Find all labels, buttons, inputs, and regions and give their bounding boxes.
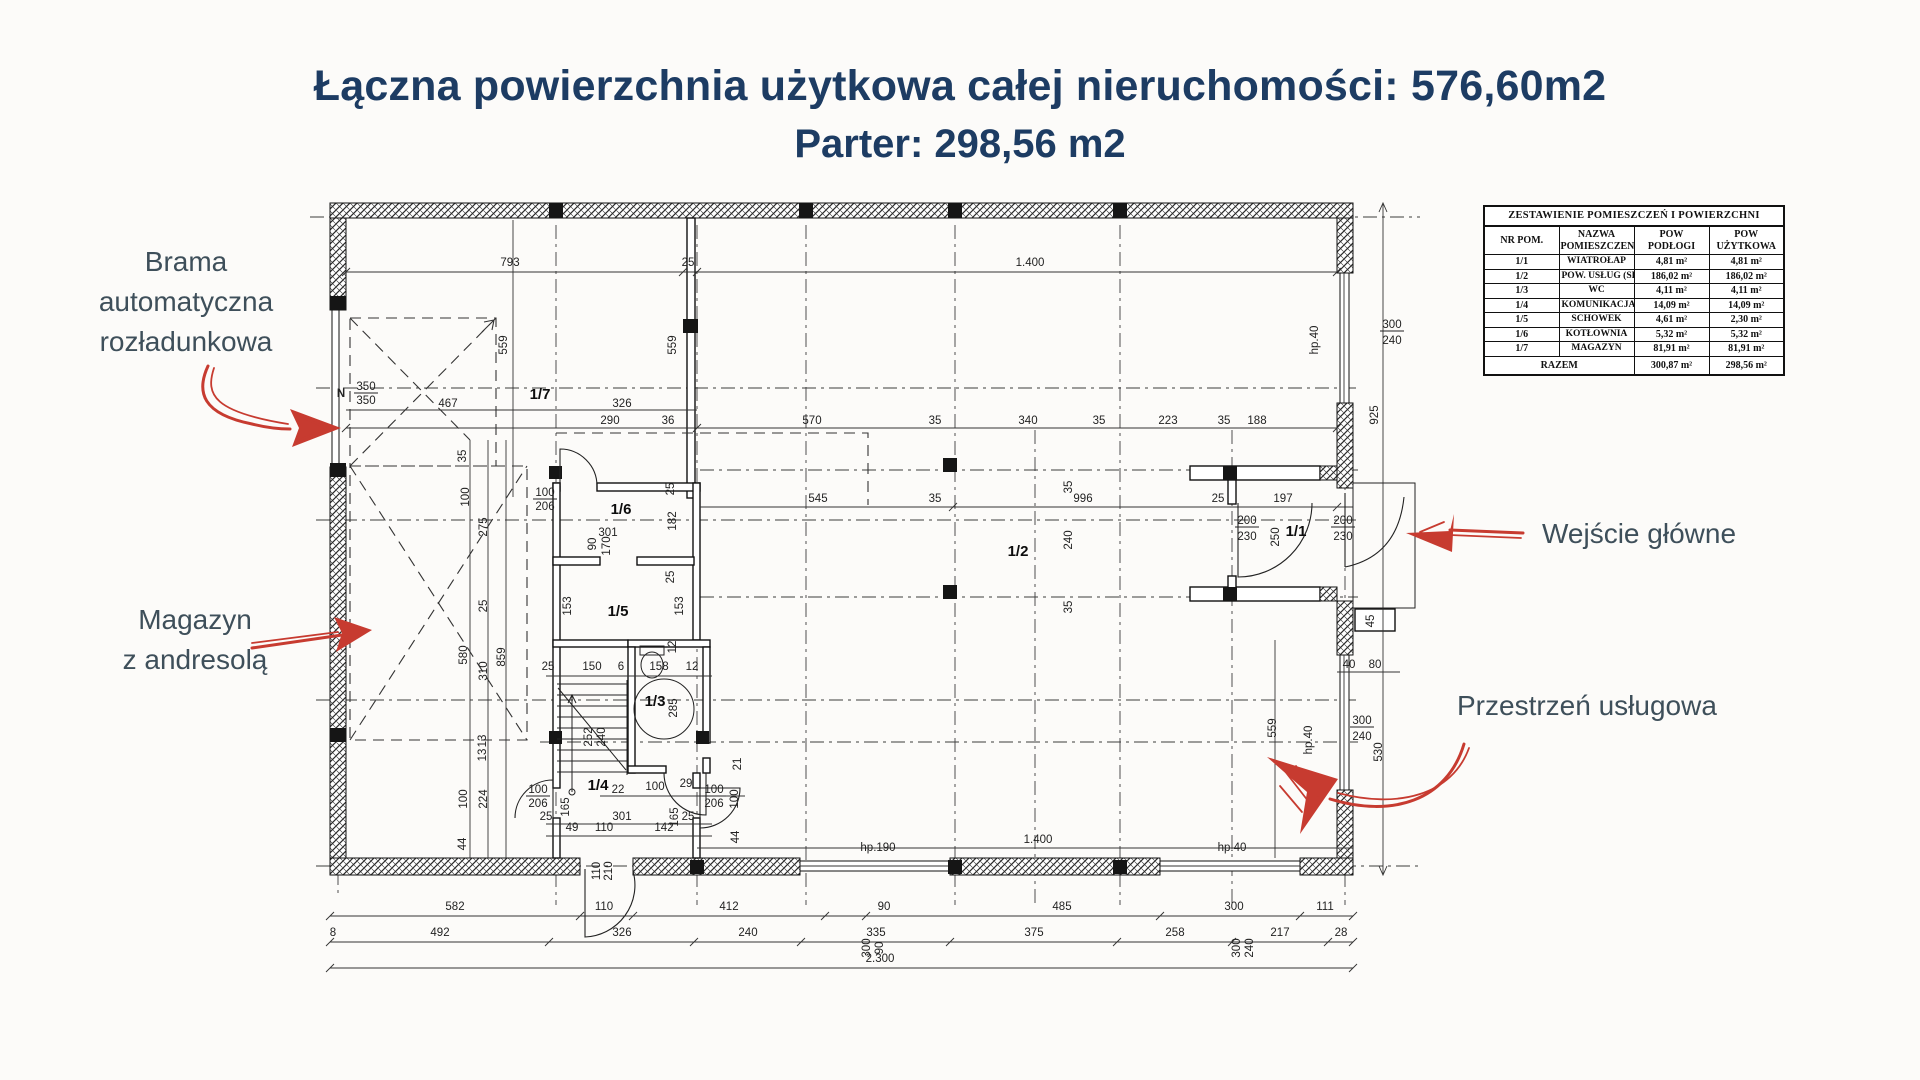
dim-label: 559 xyxy=(667,335,679,354)
dim-label: 350 xyxy=(356,395,375,407)
dim-label: hp.40 xyxy=(1303,726,1315,755)
dim-label: 310 xyxy=(478,661,490,680)
partition-walls xyxy=(553,218,1395,858)
arrow-brama xyxy=(203,366,341,447)
dim-label: 559 xyxy=(498,335,510,354)
dim-label: 22 xyxy=(612,784,625,796)
dim-label: 223 xyxy=(1158,415,1177,427)
dim-label: 49 xyxy=(566,822,579,834)
dim-label: 290 xyxy=(600,415,619,427)
dim-label: 36 xyxy=(662,415,675,427)
floor-plan-svg: 793251.400467326290365703534035223351883… xyxy=(0,0,1920,1080)
dim-label: 492 xyxy=(430,927,449,939)
dim-label: 1.400 xyxy=(1024,834,1053,846)
dim-label: 25 xyxy=(665,571,677,584)
dim-label: hp.190 xyxy=(860,842,895,854)
dim-label: 25 xyxy=(682,811,695,823)
dim-label: 25 xyxy=(682,257,695,269)
dim-label: 240 xyxy=(1382,335,1401,347)
dim-label: 8 xyxy=(330,927,336,939)
dim-label: 45 xyxy=(1365,615,1377,628)
dim-label: 340 xyxy=(1018,415,1037,427)
dim-label: 182 xyxy=(667,511,679,530)
dim-label: 300 xyxy=(1352,715,1371,727)
dim-label: 252 xyxy=(583,727,595,746)
dim-label: 100 xyxy=(704,784,723,796)
dim-label: 206 xyxy=(528,798,547,810)
room-label: 1/4 xyxy=(588,777,610,794)
dim-label: 275 xyxy=(478,517,490,536)
dim-label: 35 xyxy=(929,415,942,427)
dim-label: 35 xyxy=(457,450,469,463)
dim-label: 793 xyxy=(500,257,519,269)
dim-label: hp.40 xyxy=(1309,326,1321,355)
dim-label: 859 xyxy=(496,647,508,666)
dim-label: 25 xyxy=(542,661,555,673)
dim-label: 90 xyxy=(874,942,886,955)
dim-label: 100 xyxy=(535,487,554,499)
windows xyxy=(332,273,1349,871)
dim-label: 90 xyxy=(587,538,599,551)
dim-label: 559 xyxy=(1267,718,1279,737)
dim-label: 467 xyxy=(438,398,457,410)
dim-label: 12 xyxy=(686,661,699,673)
dim-label: 200 xyxy=(1237,515,1256,527)
dim-label: 44 xyxy=(457,837,469,850)
dim-label: 111 xyxy=(1316,901,1333,913)
dim-label: 35 xyxy=(1063,601,1075,614)
dim-label: 29 xyxy=(680,778,693,790)
outer-walls xyxy=(330,203,1353,875)
dim-label: 165 xyxy=(560,797,572,816)
dim-label: 80 xyxy=(1369,659,1382,671)
dim-label: 100 xyxy=(645,781,664,793)
dim-label: 240 xyxy=(738,927,757,939)
dim-label: 25 xyxy=(540,811,553,823)
dim-label: 40 xyxy=(1343,659,1356,671)
dim-label: 28 xyxy=(1335,927,1348,939)
dim-label: 188 xyxy=(1247,415,1266,427)
dim-label: 165 xyxy=(669,807,681,826)
dim-label: 35 xyxy=(1218,415,1231,427)
dim-label: 350 xyxy=(356,381,375,393)
dim-label: 250 xyxy=(1270,527,1282,546)
dim-label: 335 xyxy=(866,927,885,939)
room-label: 1/2 xyxy=(1008,543,1029,560)
dim-label: 412 xyxy=(719,901,738,913)
room-label: 1/5 xyxy=(608,603,629,620)
dim-label: 300 xyxy=(1231,938,1243,957)
dim-label: 12 xyxy=(667,641,679,654)
dim-label: 158 xyxy=(649,661,668,673)
arrow-przestrzen xyxy=(1267,744,1469,834)
grid-lines xyxy=(310,217,1420,905)
dim-label: 240 xyxy=(1244,938,1256,957)
dim-label: 258 xyxy=(1165,927,1184,939)
dim-label: 545 xyxy=(808,493,827,505)
dim-label: 485 xyxy=(1052,901,1071,913)
dim-label: 925 xyxy=(1369,405,1381,424)
dim-label: 300 xyxy=(861,938,873,957)
dim-label: 110 xyxy=(591,862,603,880)
dim-label: 217 xyxy=(1270,927,1289,939)
dim-label: 100 xyxy=(458,789,470,808)
dim-label: 100 xyxy=(729,789,741,808)
dim-label: 100 xyxy=(528,784,547,796)
dim-label: 326 xyxy=(612,398,631,410)
room-label: 1/6 xyxy=(611,501,632,518)
dim-label: 580 xyxy=(458,645,470,664)
arrow-wejscie xyxy=(1406,514,1523,552)
dim-label: 200 xyxy=(1333,515,1352,527)
dim-label: 150 xyxy=(582,661,601,673)
dim-label: 582 xyxy=(445,901,464,913)
room-label: 1/7 xyxy=(530,386,551,403)
dim-label: 153 xyxy=(562,596,574,615)
dim-label: 90 xyxy=(878,901,891,913)
arrow-magazyn xyxy=(252,617,372,652)
dim-label: 301 xyxy=(612,811,631,823)
dim-label: 375 xyxy=(1024,927,1043,939)
dim-label: 35 xyxy=(929,493,942,505)
dim-label: 25 xyxy=(665,483,677,496)
room-label: 1/3 xyxy=(645,693,666,710)
dim-label: 170 xyxy=(601,536,613,555)
columns xyxy=(330,203,1237,874)
dim-label: 230 xyxy=(1237,531,1256,543)
dim-label: 224 xyxy=(478,789,490,809)
dim-label: 300 xyxy=(1224,901,1243,913)
dim-label: 206 xyxy=(535,501,554,513)
dim-label: 570 xyxy=(802,415,821,427)
dim-label: 240 xyxy=(596,727,608,746)
dim-label: 21 xyxy=(732,758,744,771)
dim-label: 110 xyxy=(595,822,613,834)
dim-label: 110 xyxy=(595,901,613,913)
dim-label: 996 xyxy=(1073,493,1092,505)
dim-label: 35 xyxy=(1063,481,1075,494)
dim-label: 13 xyxy=(477,735,489,748)
dim-label: 240 xyxy=(1063,530,1075,549)
dim-label: 25 xyxy=(478,600,490,613)
dim-label: 197 xyxy=(1273,493,1292,505)
dim-label: 210 xyxy=(603,861,615,880)
dim-label: 13 xyxy=(477,749,489,762)
dim-label: 100 xyxy=(460,487,472,506)
dim-label: N xyxy=(337,388,345,400)
dim-label: 25 xyxy=(1212,493,1225,505)
dim-label: 230 xyxy=(1333,531,1352,543)
page: { "colors":{"navy":"#1d3c63","slate":"#3… xyxy=(0,0,1920,1080)
dim-label: hp.40 xyxy=(1218,842,1247,854)
dim-label: 206 xyxy=(704,798,723,810)
dim-label: 285 xyxy=(668,698,680,717)
room-label: 1/1 xyxy=(1286,523,1307,540)
dim-label: 6 xyxy=(618,661,624,673)
dim-label: 530 xyxy=(1373,742,1385,761)
dim-label: 44 xyxy=(730,830,742,843)
dim-label: 326 xyxy=(612,927,631,939)
dim-label: 1.400 xyxy=(1016,257,1045,269)
dim-label: 35 xyxy=(1093,415,1106,427)
dim-label: 153 xyxy=(674,596,686,615)
dim-label: 240 xyxy=(1352,731,1371,743)
dim-label: 300 xyxy=(1382,319,1401,331)
